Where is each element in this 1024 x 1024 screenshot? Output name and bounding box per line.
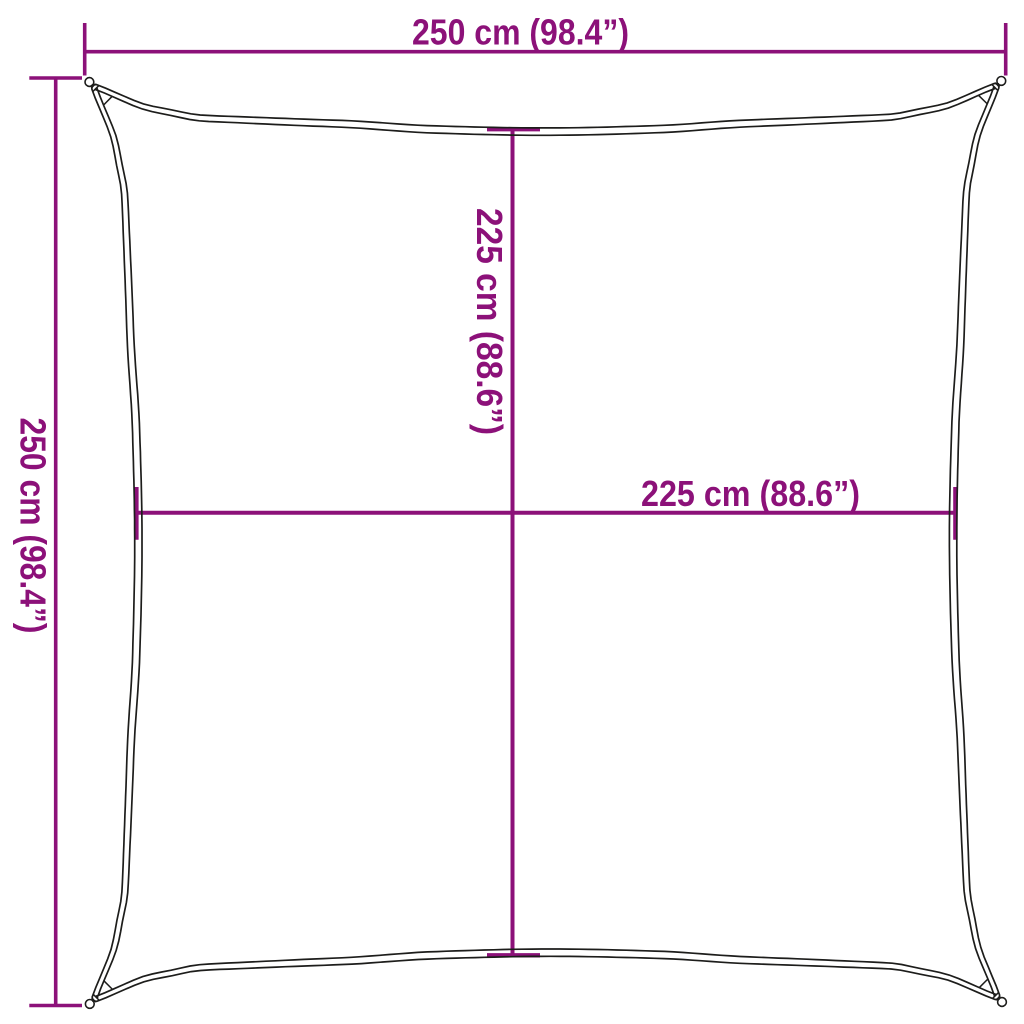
svg-text:250 cm (98.4”): 250 cm (98.4”) (412, 12, 629, 53)
svg-text:225 cm (88.6”): 225 cm (88.6”) (641, 473, 860, 514)
svg-text:225 cm (88.6”): 225 cm (88.6”) (469, 208, 510, 435)
svg-text:250 cm (98.4”): 250 cm (98.4”) (13, 418, 54, 634)
